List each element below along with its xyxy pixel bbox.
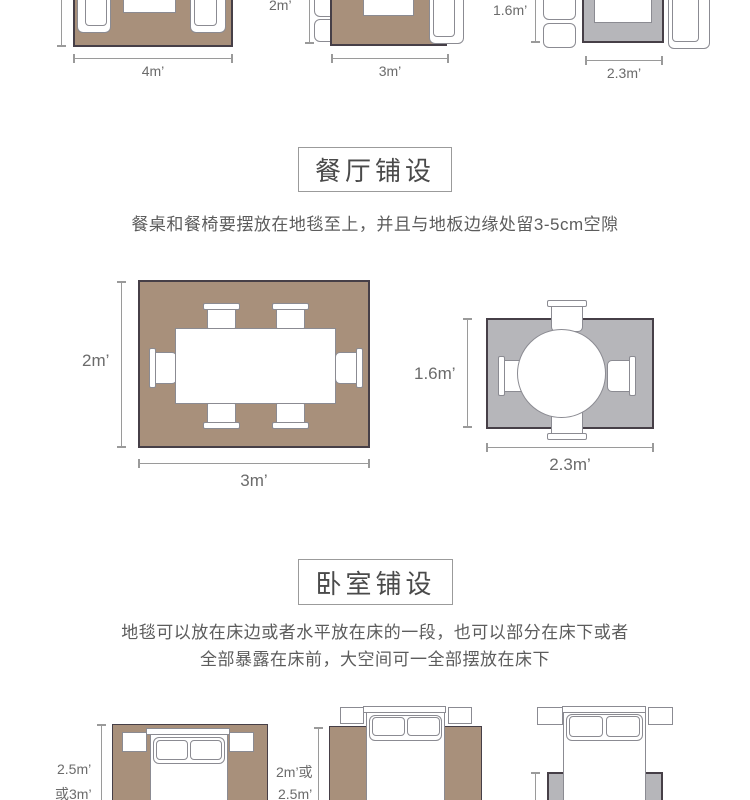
rug-layout-infographic: 4m’ 2m’ 3m’ 1.6m’ 2.3m’ 餐厅铺设 餐桌和餐椅要摆放在地毯… (0, 0, 750, 800)
width-dimension-line (486, 447, 654, 448)
coffee-table (594, 0, 652, 23)
width-label: 2.3m’ (585, 65, 663, 81)
width-dimension-line (585, 60, 663, 61)
height-dimension-line (101, 724, 102, 800)
dining-chair (547, 300, 587, 332)
dining-table (175, 328, 336, 404)
height-dimension-line (535, 0, 536, 43)
width-dimension-line (138, 463, 370, 464)
nightstand (448, 707, 472, 724)
dining-chair (272, 400, 309, 429)
height-dimension-line (309, 0, 310, 44)
nightstand (229, 732, 254, 752)
dining-chair (543, 0, 576, 20)
height-label: 1.6m’ (493, 2, 527, 18)
dining-chair (335, 348, 363, 388)
height-dimension-line (121, 281, 122, 448)
height-dimension-line (467, 318, 468, 428)
width-label: 3m’ (138, 471, 370, 491)
pillow (407, 717, 440, 736)
width-dimension-line (73, 58, 233, 59)
height-label-line1: 2.5m’ (57, 761, 91, 777)
sofa (429, 0, 464, 44)
height-label: 1.6m’ (414, 364, 456, 384)
height-label: 2m’ (82, 351, 109, 371)
armchair (77, 0, 111, 33)
bedroom-description-line1: 地毯可以放在床边或者水平放在床的一段，也可以部分在床下或者 (0, 618, 750, 643)
bedroom-section-title: 卧室铺设 (298, 559, 453, 605)
width-dimension-line (331, 58, 449, 59)
sofa-cushion (433, 0, 455, 37)
pillow (606, 716, 640, 737)
pillow (156, 740, 188, 760)
height-label-line1: 2m’或 (276, 762, 313, 782)
dining-chair (607, 356, 636, 396)
dining-chair (203, 400, 240, 429)
dining-section-description: 餐桌和餐椅要摆放在地毯至上，并且与地板边缘处留3-5cm空隙 (0, 210, 750, 235)
sofa (190, 0, 226, 33)
bedroom-description-line2: 全部暴露在床前，大空间可一全部摆放在床下 (0, 645, 750, 670)
height-dimension-line (318, 727, 319, 800)
height-dimension-line (535, 772, 536, 800)
height-label-line2: 2.5m’ (278, 786, 312, 800)
armchair-cushion (85, 0, 107, 26)
width-label: 2.3m’ (486, 455, 654, 475)
height-label-line2: 或3m’ (55, 784, 92, 800)
sofa-cushion (194, 0, 217, 26)
height-label: 2m’ (269, 0, 292, 13)
dining-section-title: 餐厅铺设 (298, 147, 452, 192)
dining-chair (543, 23, 576, 48)
width-label: 4m’ (73, 63, 233, 79)
nightstand (537, 707, 563, 725)
pillow (569, 716, 603, 737)
pillow (372, 717, 405, 736)
nightstand (340, 707, 364, 724)
width-label: 3m’ (331, 63, 449, 79)
coffee-table (123, 0, 176, 13)
round-dining-table (517, 329, 606, 418)
coffee-table (363, 0, 414, 16)
dining-chair (149, 348, 177, 388)
sofa (668, 0, 710, 49)
sofa-cushion (672, 0, 699, 42)
height-dimension-line (61, 0, 62, 47)
nightstand (122, 732, 147, 752)
nightstand (648, 707, 673, 725)
pillow (190, 740, 222, 760)
